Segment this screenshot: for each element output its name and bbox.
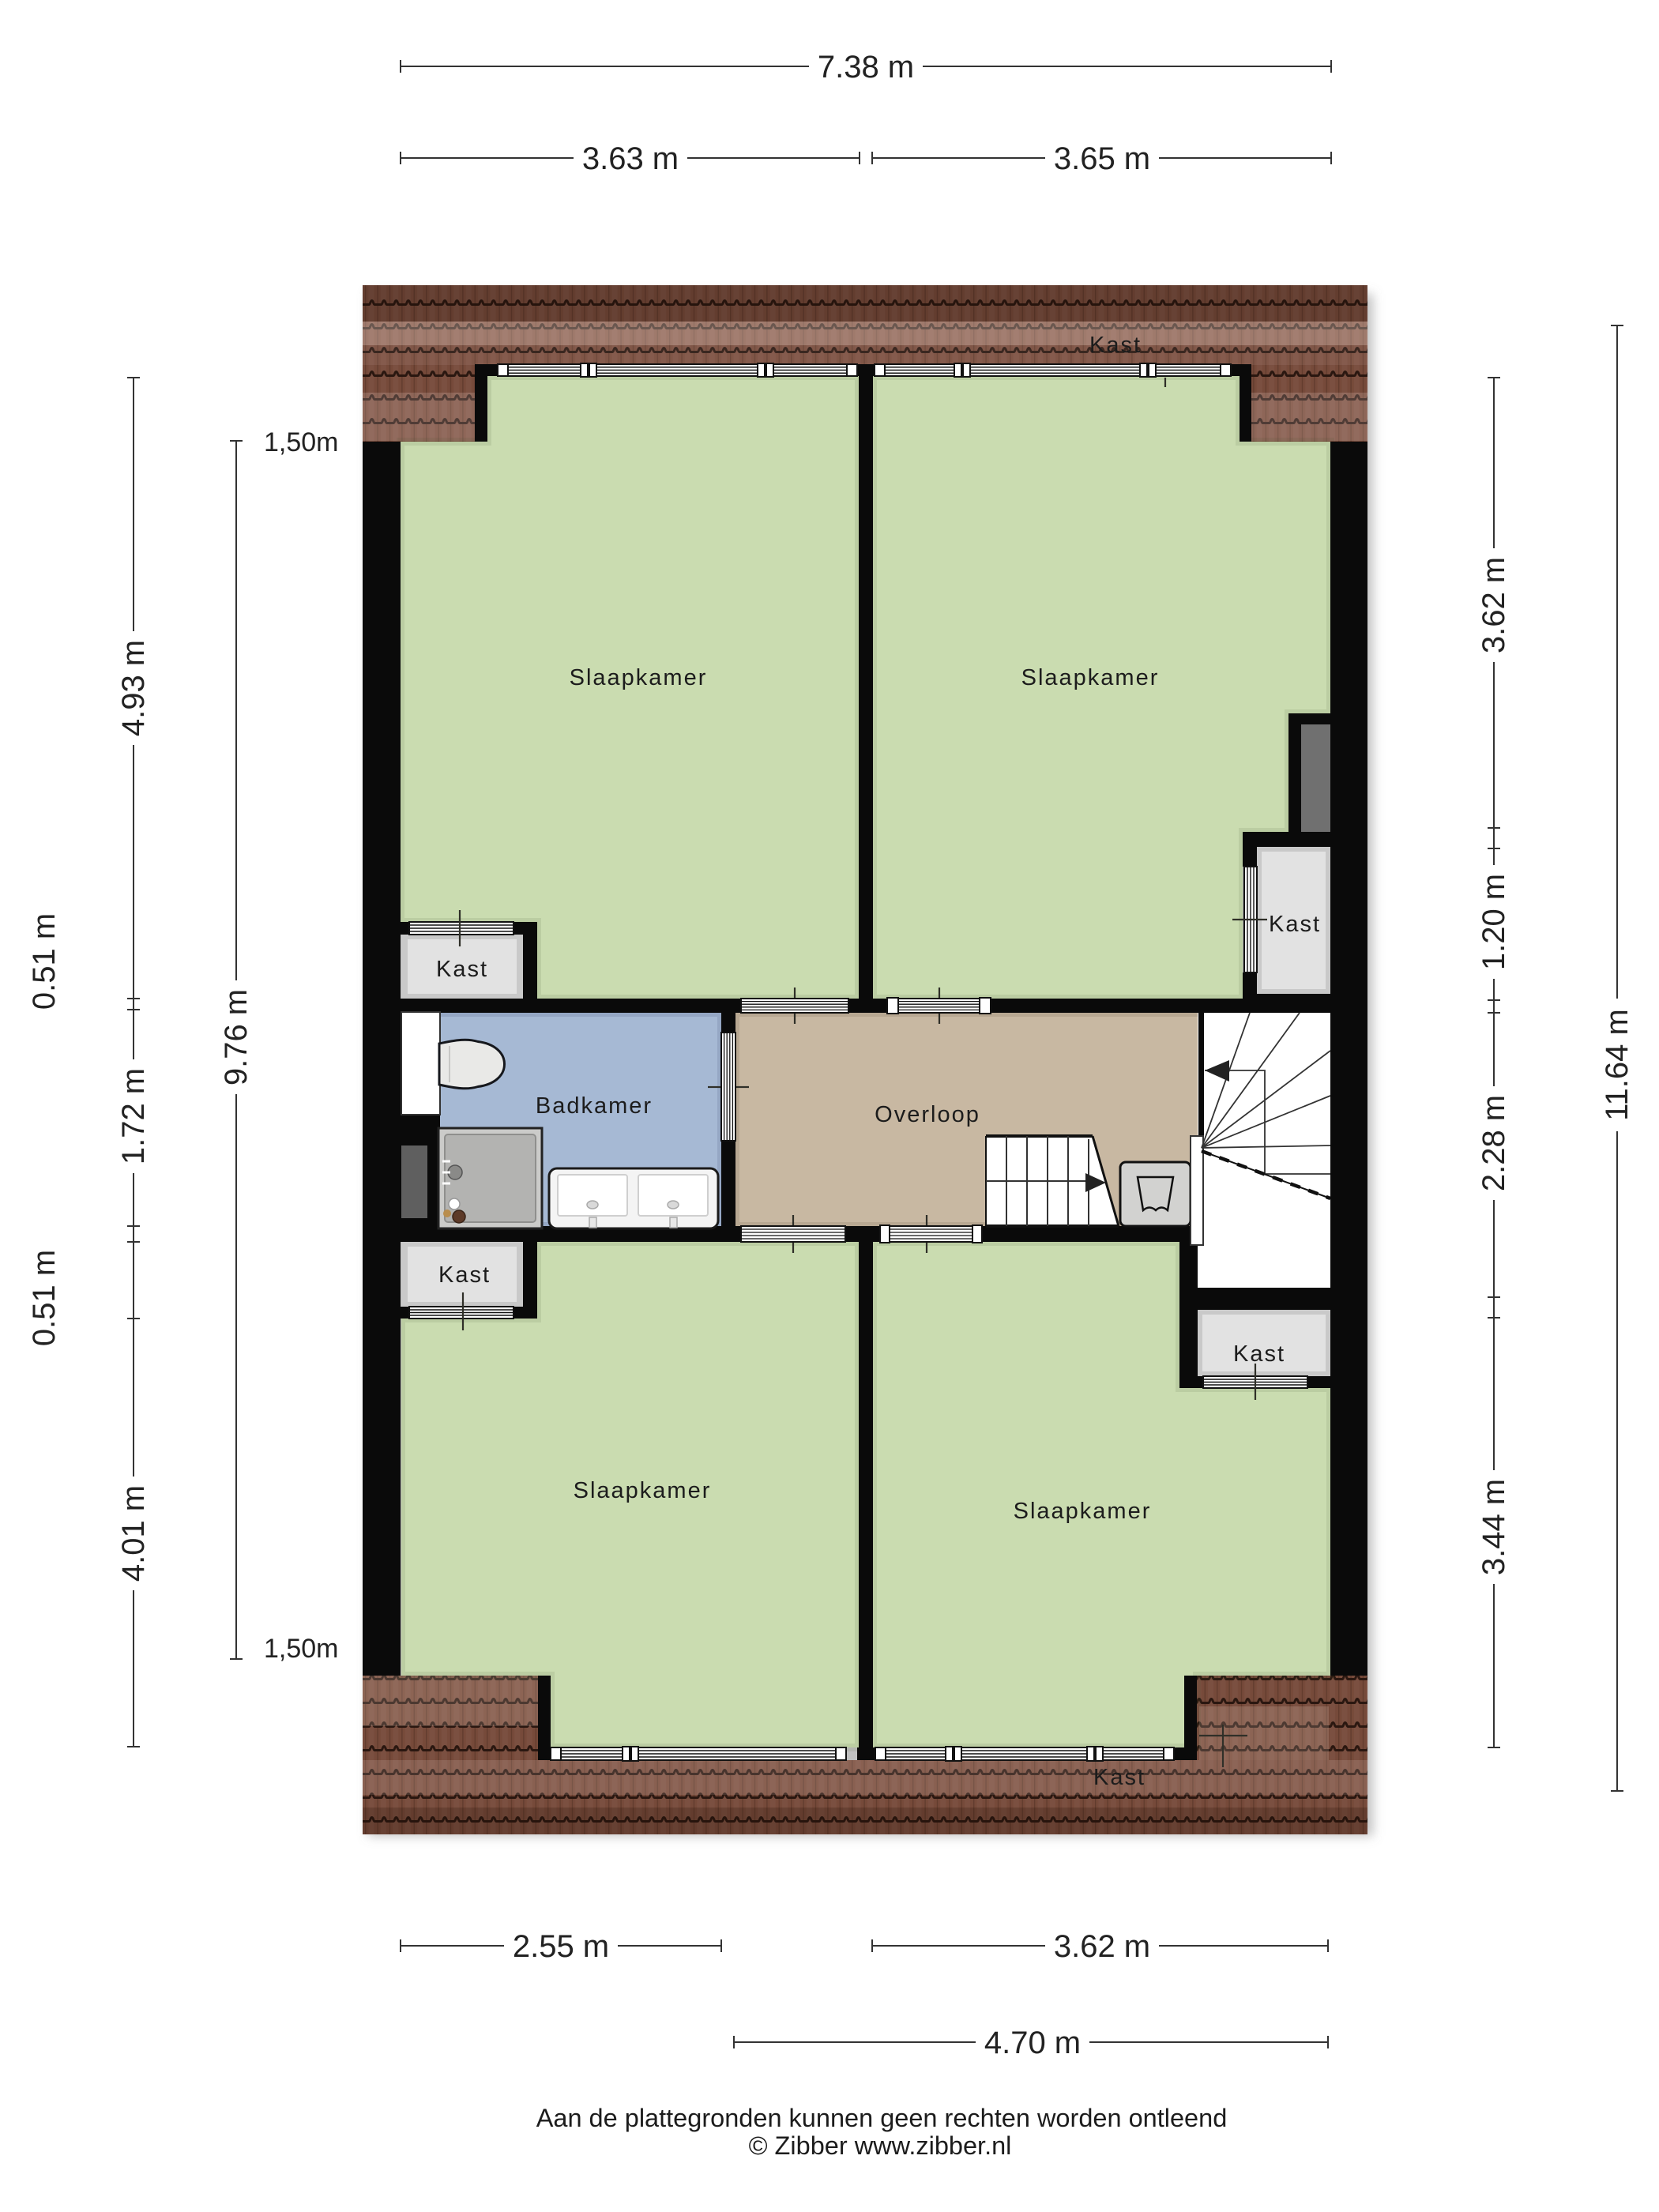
svg-text:1,50m: 1,50m [264, 427, 339, 457]
svg-text:9.76 m: 9.76 m [219, 989, 254, 1085]
svg-text:2.55 m: 2.55 m [513, 1929, 609, 1964]
svg-text:Slaapkamer: Slaapkamer [1014, 1499, 1152, 1524]
svg-text:11.64 m: 11.64 m [1600, 1009, 1635, 1121]
svg-text:0.51 m: 0.51 m [27, 913, 62, 1010]
svg-text:3.63 m: 3.63 m [582, 141, 679, 176]
svg-text:Slaapkamer: Slaapkamer [1021, 665, 1160, 690]
svg-text:1.72 m: 1.72 m [116, 1068, 151, 1164]
svg-text:Kast: Kast [438, 1262, 491, 1288]
svg-text:1.20 m: 1.20 m [1477, 874, 1511, 970]
svg-text:2.28 m: 2.28 m [1477, 1095, 1511, 1191]
svg-text:4.01 m: 4.01 m [116, 1485, 151, 1582]
svg-text:0.51 m: 0.51 m [27, 1250, 62, 1346]
svg-text:3.44 m: 3.44 m [1477, 1479, 1511, 1575]
svg-text:Slaapkamer: Slaapkamer [574, 1478, 712, 1503]
svg-text:3.62 m: 3.62 m [1477, 557, 1511, 653]
svg-text:Overloop: Overloop [875, 1102, 980, 1127]
svg-text:4.93 m: 4.93 m [116, 640, 151, 736]
svg-text:Badkamer: Badkamer [536, 1093, 653, 1119]
svg-text:© Zibber www.zibber.nl: © Zibber www.zibber.nl [749, 2131, 1012, 2160]
svg-text:Kast: Kast [1269, 912, 1321, 937]
svg-text:Kast: Kast [1093, 1765, 1145, 1790]
svg-text:1,50m: 1,50m [264, 1634, 339, 1664]
svg-text:3.62 m: 3.62 m [1054, 1929, 1150, 1964]
svg-text:Kast: Kast [1233, 1341, 1285, 1367]
svg-text:Kast: Kast [1089, 333, 1142, 358]
svg-text:Aan de plattegronden kunnen ge: Aan de plattegronden kunnen geen rechten… [536, 2104, 1228, 2132]
svg-text:Kast: Kast [436, 957, 488, 982]
svg-text:3.65 m: 3.65 m [1054, 141, 1150, 176]
svg-text:7.38 m: 7.38 m [818, 50, 914, 85]
svg-text:4.70 m: 4.70 m [984, 2026, 1081, 2060]
svg-text:Slaapkamer: Slaapkamer [570, 665, 708, 690]
